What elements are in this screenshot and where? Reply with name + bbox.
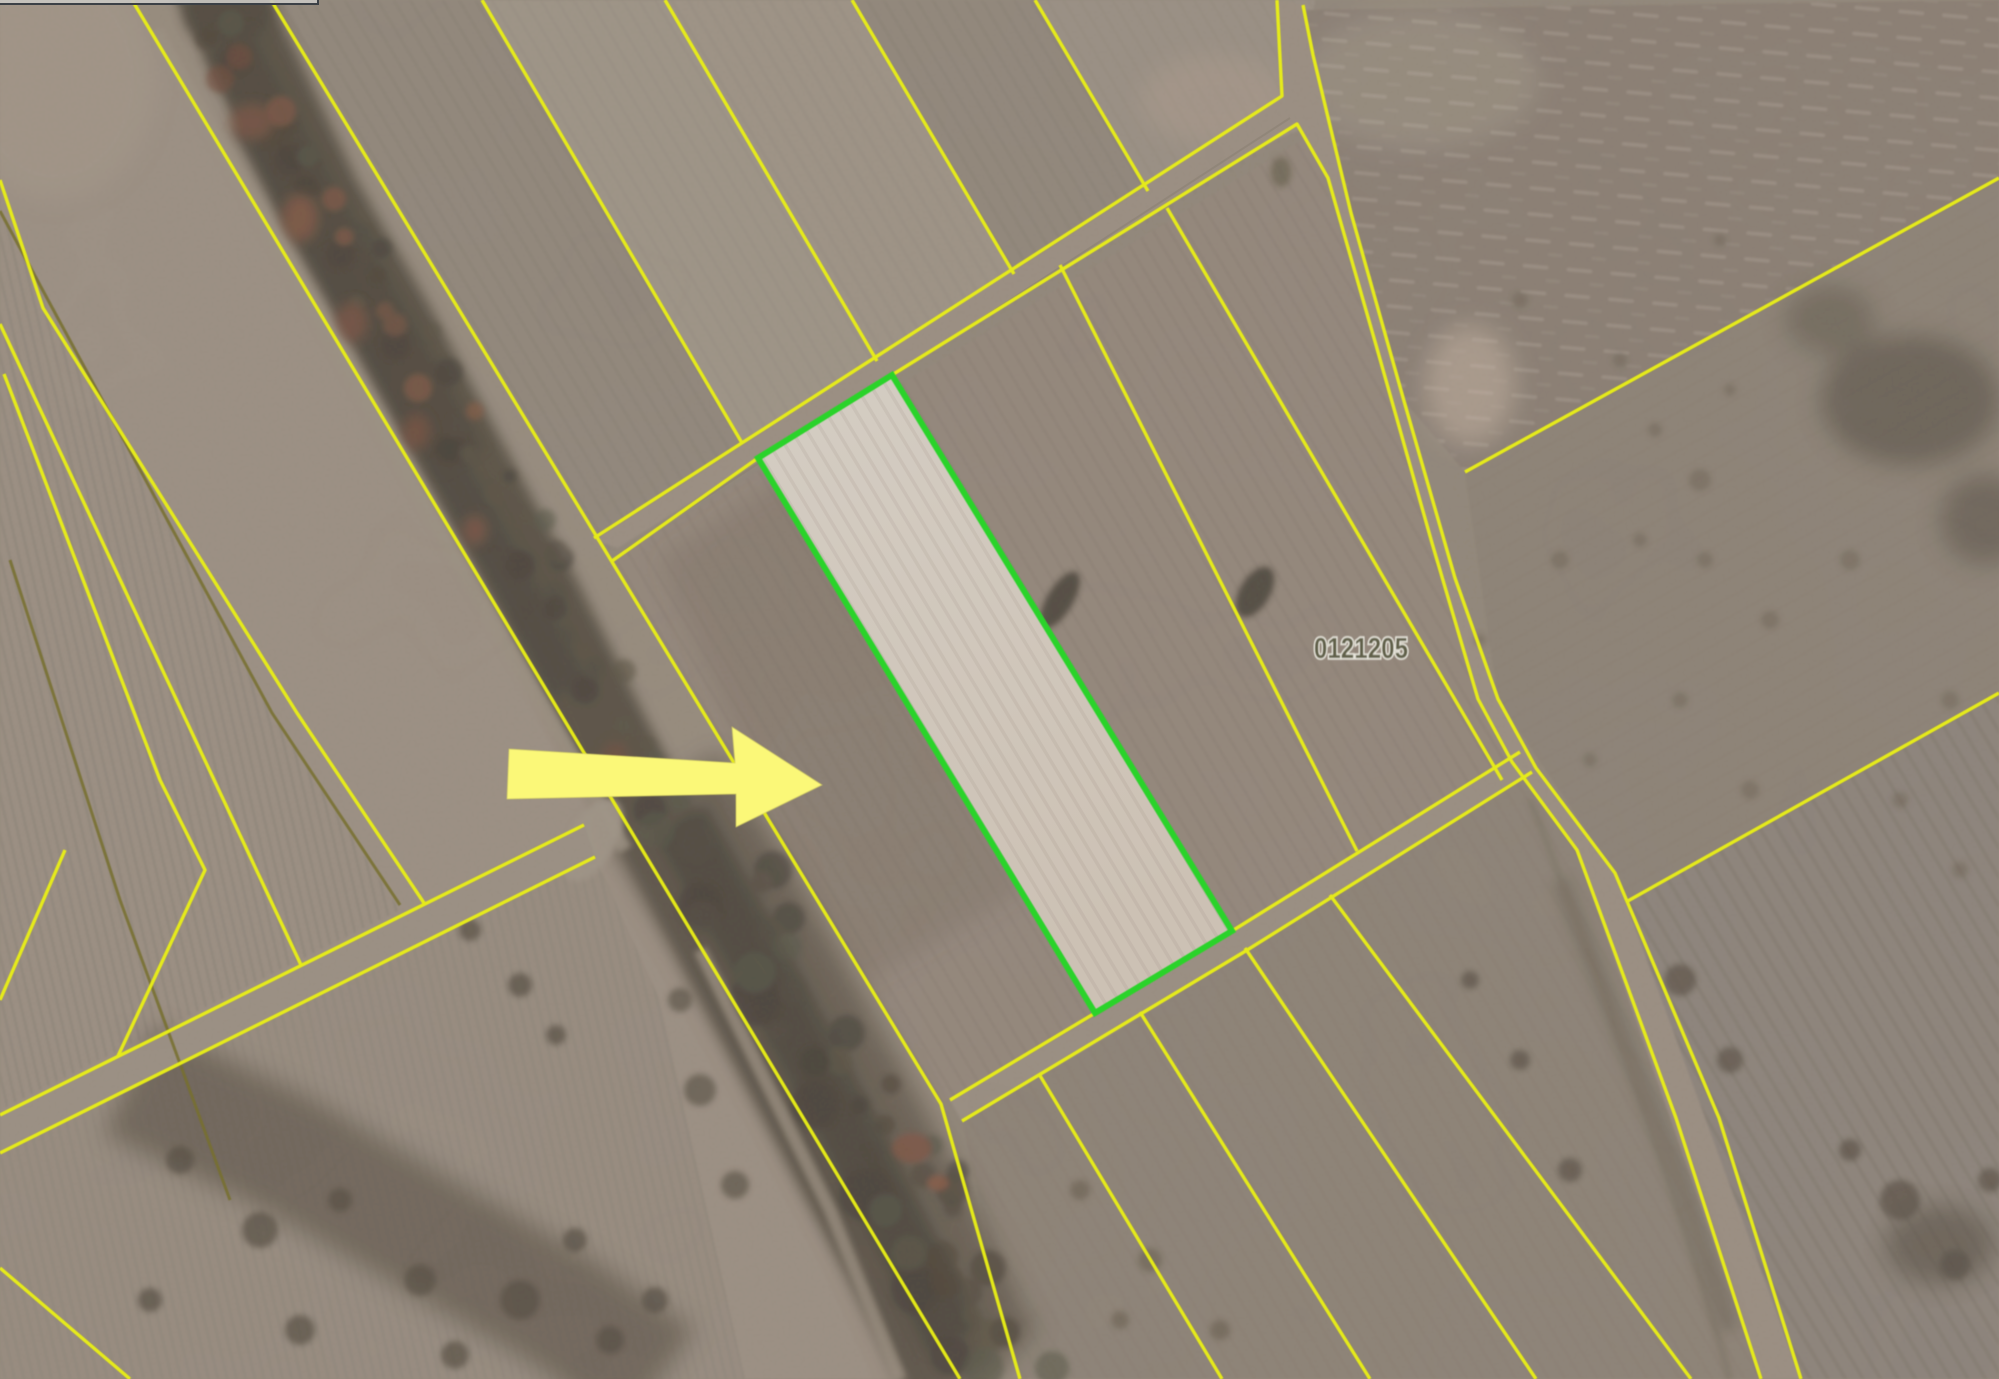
svg-text:0121205: 0121205 [1314,632,1408,665]
